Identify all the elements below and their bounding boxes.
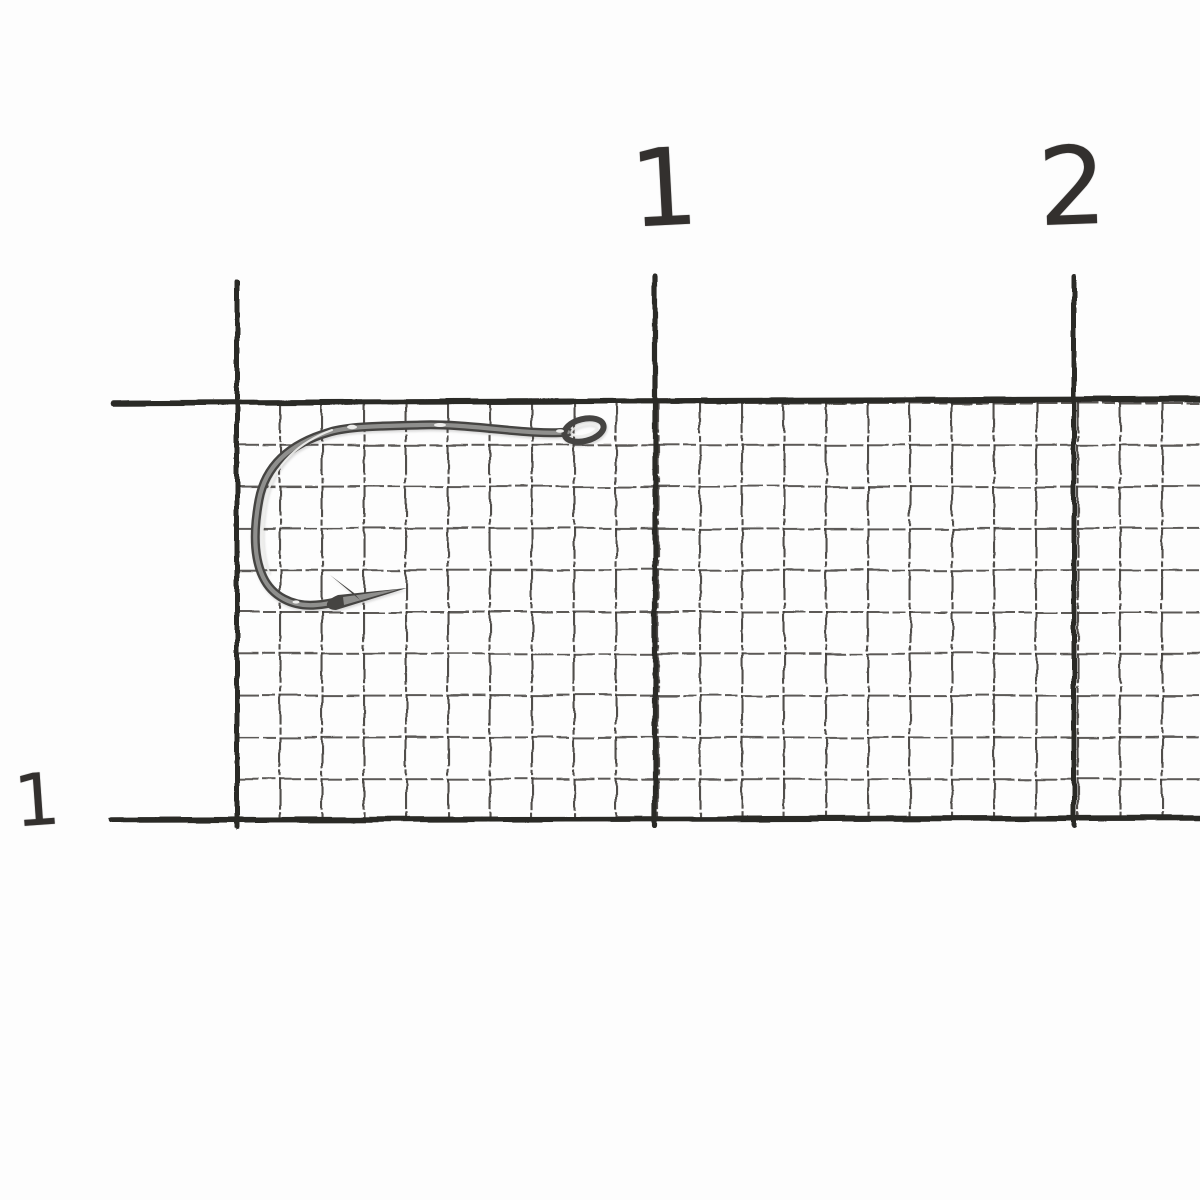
- ruler-label-top-2cm: 2: [1036, 133, 1108, 243]
- photo-canvas: 1 2 1: [0, 0, 1200, 1200]
- major-line-horizontal-bottom-1cm: [111, 818, 1200, 820]
- grid-fine-lines: [237, 402, 1200, 820]
- ruler-label-top-1cm: 1: [627, 134, 701, 244]
- graph-paper: [111, 277, 1200, 827]
- ruler-label-left-1cm: 1: [12, 762, 63, 837]
- major-line-horizontal-top: [113, 399, 1200, 403]
- millimeter-grid-photo: [0, 0, 1200, 1200]
